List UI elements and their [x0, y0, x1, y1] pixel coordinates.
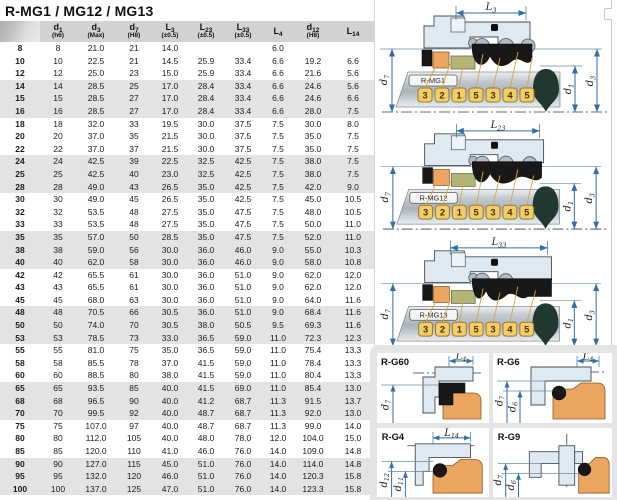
diagram-r-mg1: R-MG1 3 2 1 5 3 4 5 L3 d7 d1 d3: [378, 0, 614, 118]
cell: 62.0: [76, 256, 116, 269]
cell: 69.3: [294, 319, 332, 332]
cell: 14.0: [262, 458, 294, 471]
row-size: 16: [0, 105, 40, 118]
rubber-bellows: [472, 279, 551, 301]
black-ring: [423, 168, 433, 184]
cell: 55.0: [294, 244, 332, 257]
svg-text:2: 2: [440, 324, 445, 335]
row-size: 75: [0, 420, 40, 433]
dim-label-d6: d6: [506, 480, 518, 490]
cell: 39: [116, 155, 152, 168]
table-row: 222237.03721.530.037.57.535.07.5: [0, 143, 374, 156]
svg-text:4: 4: [507, 324, 513, 335]
table-row: 151528.52717.028.433.46.624.66.6: [0, 92, 374, 105]
cell: 45: [116, 193, 152, 206]
cell: 90: [116, 395, 152, 408]
cell: 30.5: [152, 306, 188, 319]
cell: 68.7: [224, 420, 262, 433]
cell: 6.0: [262, 42, 294, 55]
cell: 53: [40, 332, 76, 345]
dim-label-d3: d3: [584, 310, 596, 320]
drive-collar: [451, 253, 465, 267]
cell: 35.0: [188, 181, 224, 194]
cell: 123.3: [294, 483, 332, 496]
cell: 24.6: [294, 92, 332, 105]
row-size: 53: [0, 332, 40, 345]
table-row: 434365.56130.036.051.09.062.012.0: [0, 281, 374, 294]
row-size: 90: [0, 458, 40, 471]
header-row: d1(h6) d3(Max) d7(H8) L3(±0.5) L23(±0.5)…: [0, 21, 374, 42]
cell: 25: [40, 168, 76, 181]
cell: 25.9: [188, 67, 224, 80]
cell: 37.5: [224, 130, 262, 143]
cell: 16: [40, 105, 76, 118]
cell: 21.5: [152, 130, 188, 143]
cell: 90: [40, 458, 76, 471]
cell: 36.0: [188, 269, 224, 282]
cell: 93.5: [76, 382, 116, 395]
cell: 13.7: [332, 395, 374, 408]
cell: 25: [116, 80, 152, 93]
cell: 70: [116, 319, 152, 332]
cell: 37.0: [76, 143, 116, 156]
cell: 47.0: [152, 483, 188, 496]
svg-text:3: 3: [490, 207, 495, 218]
cell: 30.0: [188, 130, 224, 143]
cell: 99.0: [294, 420, 332, 433]
cell: 9.0: [262, 256, 294, 269]
cell: 50.0: [294, 218, 332, 231]
cell: 41.2: [188, 395, 224, 408]
cell: 17.0: [152, 105, 188, 118]
page-title: R-MG1 / MG12 / MG13: [5, 3, 154, 19]
cell: 73: [116, 332, 152, 345]
cell: 38.0: [188, 319, 224, 332]
cell: 48.7: [188, 420, 224, 433]
cell: 7.5: [332, 168, 374, 181]
cell: 65.5: [76, 269, 116, 282]
cell: 17.0: [152, 80, 188, 93]
cell: 41.5: [188, 369, 224, 382]
diagram-label: R-G9: [498, 432, 520, 442]
cell: 50: [116, 231, 152, 244]
cell: 11.0: [262, 382, 294, 395]
cell: 30.0: [188, 118, 224, 131]
cell: 35.0: [294, 130, 332, 143]
row-size: 40: [0, 256, 40, 269]
cell: 51.0: [224, 306, 262, 319]
cell: 42.5: [224, 155, 262, 168]
cell: 7.5: [262, 218, 294, 231]
cell: 22.5: [152, 155, 188, 168]
cell: 78: [116, 357, 152, 370]
cell: 6.6: [262, 55, 294, 68]
cell: 37.5: [224, 143, 262, 156]
cell: 10: [40, 55, 76, 68]
cell: 30.0: [152, 256, 188, 269]
cell: 51.0: [188, 458, 224, 471]
dim-label-l4: L4: [582, 353, 594, 364]
svg-text:4: 4: [507, 207, 513, 218]
cell: 28.5: [76, 92, 116, 105]
diagram-label: R-G60: [381, 357, 409, 368]
table-row: 8585120.011041.046.076.014.0109.014.8: [0, 445, 374, 458]
cell: 7.5: [332, 155, 374, 168]
cell: 30.5: [152, 319, 188, 332]
cell: 28.0: [294, 105, 332, 118]
column-header-l23: L23(±0.5): [188, 21, 224, 42]
cell: 7.5: [262, 193, 294, 206]
cell: 51.0: [224, 281, 262, 294]
column-header-l4: L4: [262, 21, 294, 42]
cell: 30.0: [294, 118, 332, 131]
cell: 48: [116, 206, 152, 219]
cell: 27: [116, 105, 152, 118]
cell: 132.0: [76, 470, 116, 483]
column-header-l3: L3(±0.5): [152, 21, 188, 42]
cell: 32.0: [76, 118, 116, 131]
cell: 109.0: [294, 445, 332, 458]
seat-ring: [433, 52, 449, 68]
cell: 7.5: [262, 118, 294, 131]
dimension-table: d1(h6) d3(Max) d7(H8) L3(±0.5) L23(±0.5)…: [0, 21, 374, 495]
table-row: 9595132.012046.051.076.014.0120.315.8: [0, 470, 374, 483]
cell: 59.0: [224, 344, 262, 357]
cell: 6.6: [262, 105, 294, 118]
o-ring: [433, 463, 447, 477]
cell: 20: [40, 130, 76, 143]
cell: 37.0: [152, 357, 188, 370]
cell: 57.0: [76, 231, 116, 244]
cell: 30.0: [152, 294, 188, 307]
row-size: 70: [0, 407, 40, 420]
dim-label-d7: d7: [381, 399, 393, 410]
table-row: 303049.04526.535.042.57.545.010.5: [0, 193, 374, 206]
cell: 80: [116, 369, 152, 382]
dim-label-d7: d7: [380, 191, 392, 202]
cell: 7.5: [262, 168, 294, 181]
dim-label-d11: d11: [393, 477, 405, 491]
svg-text:3: 3: [422, 91, 427, 102]
table-row: 484870.56630.536.051.09.068.411.6: [0, 306, 374, 319]
cell: 22: [40, 143, 76, 156]
row-size: 100: [0, 483, 40, 496]
cell: 68.7: [224, 395, 262, 408]
row-size: 14: [0, 80, 40, 93]
table-row: 9090127.011545.051.076.014.0114.014.8: [0, 458, 374, 471]
cell: 28.5: [152, 231, 188, 244]
cell: 43: [40, 281, 76, 294]
cell: 30.0: [152, 269, 188, 282]
dim-label-d3: d3: [584, 193, 596, 203]
cell: 75: [116, 344, 152, 357]
dim-label-d1: d1: [563, 84, 576, 95]
cell: 11.0: [262, 369, 294, 382]
cell: 59.0: [224, 332, 262, 345]
cell: 15: [40, 92, 76, 105]
table-row: 121225.02315.025.933.46.621.65.6: [0, 67, 374, 80]
cell: 74.0: [76, 319, 116, 332]
cell: 95: [40, 470, 76, 483]
cell: 115: [116, 458, 152, 471]
cell: 96.5: [76, 395, 116, 408]
cell: 35: [40, 231, 76, 244]
black-ring: [423, 285, 433, 301]
table-row: 454568.06330.036.051.09.064.011.6: [0, 294, 374, 307]
cell: 78.0: [224, 432, 262, 445]
cell: 55: [40, 344, 76, 357]
cell: 48.0: [188, 432, 224, 445]
cell: 88.5: [76, 369, 116, 382]
cell: 36.5: [188, 344, 224, 357]
cell: 23: [116, 67, 152, 80]
cell: 26.5: [152, 193, 188, 206]
row-size: 30: [0, 193, 40, 206]
table-row: 555581.07535.036.559.011.075.413.3: [0, 344, 374, 357]
row-size: 28: [0, 181, 40, 194]
cell: 120.3: [294, 470, 332, 483]
cell: 76.0: [224, 445, 262, 458]
cell: 10.3: [332, 244, 374, 257]
cell: 33.0: [152, 332, 188, 345]
diagram-r-mg12: R-MG12 3 2 1 5 3 4 5 L23 d7 d1 d3: [378, 118, 614, 235]
cell: 53.5: [76, 218, 116, 231]
cell: 120: [116, 470, 152, 483]
cell: 69.0: [224, 382, 262, 395]
cell: 68: [40, 395, 76, 408]
cell: 40.0: [152, 432, 188, 445]
cell: 11.0: [262, 332, 294, 345]
cell: 36.0: [188, 244, 224, 257]
cell: 13.3: [332, 344, 374, 357]
cell: 72.3: [294, 332, 332, 345]
cell: 13.3: [332, 357, 374, 370]
cell: 7.5: [332, 143, 374, 156]
cell: 32: [40, 206, 76, 219]
cell: 104.0: [294, 432, 332, 445]
cell: 51.0: [224, 294, 262, 307]
cell: 76.0: [224, 470, 262, 483]
diagram-r-g9: d7 d6 R-G9: [493, 428, 612, 497]
row-size: 85: [0, 445, 40, 458]
cell: 45.0: [294, 193, 332, 206]
cell: 30.0: [152, 244, 188, 257]
cell: 11.6: [332, 294, 374, 307]
column-header-d3: d3(Max): [76, 21, 116, 42]
cell: 36.0: [188, 294, 224, 307]
row-size: 10: [0, 55, 40, 68]
cell: 45: [40, 294, 76, 307]
cell: 37.5: [224, 118, 262, 131]
cell: 61: [116, 269, 152, 282]
cell: 51.0: [224, 269, 262, 282]
cell: 40: [116, 168, 152, 181]
cell: 56: [116, 244, 152, 257]
cell: 10.5: [332, 206, 374, 219]
svg-text:1: 1: [456, 91, 462, 102]
cell: 42: [40, 269, 76, 282]
cell: 14: [40, 80, 76, 93]
cell: 32.5: [188, 155, 224, 168]
cell: 18: [40, 118, 76, 131]
cell: 9.0: [262, 306, 294, 319]
dim-label-d7: d7: [493, 474, 505, 485]
cell: 11.0: [332, 218, 374, 231]
svg-text:5: 5: [524, 91, 530, 102]
cell: 58: [116, 256, 152, 269]
cell: 76.0: [224, 458, 262, 471]
table-row: 323253.54827.535.047.57.548.010.5: [0, 206, 374, 219]
cell: 63: [116, 294, 152, 307]
drive-collar: [451, 136, 465, 150]
cell: 78.4: [294, 357, 332, 370]
cell: 40: [40, 256, 76, 269]
cell: 17.0: [152, 92, 188, 105]
cell: 28.4: [188, 80, 224, 93]
table-row: 8821.02114.06.0: [0, 42, 374, 55]
cell: 65: [40, 382, 76, 395]
cell: 15.0: [152, 67, 188, 80]
cell: 36.0: [188, 306, 224, 319]
cell: 40.0: [152, 407, 188, 420]
table-row: 656593.58540.041.569.011.085.413.0: [0, 382, 374, 395]
cell: 50: [40, 319, 76, 332]
row-size: 55: [0, 344, 40, 357]
row-size: 68: [0, 395, 40, 408]
cell: 120.0: [76, 445, 116, 458]
column-header-l14: L14: [332, 21, 374, 42]
cell: 99.5: [76, 407, 116, 420]
sleeve: [559, 446, 575, 485]
cell: 66: [116, 306, 152, 319]
cell: 15.8: [332, 483, 374, 496]
cell: 91.5: [294, 395, 332, 408]
cell: 62.0: [294, 281, 332, 294]
diagram-label: R-G4: [382, 432, 405, 442]
row-size: 95: [0, 470, 40, 483]
cell: 24.6: [294, 80, 332, 93]
cell: 33.4: [224, 80, 262, 93]
cell: 21.0: [76, 42, 116, 55]
cell: 23.0: [152, 168, 188, 181]
cell: 7.5: [262, 181, 294, 194]
table-row: 424265.56130.036.051.09.062.012.0: [0, 269, 374, 282]
cell: 12.3: [332, 332, 374, 345]
cell: 48.0: [294, 206, 332, 219]
cell: 35.0: [188, 231, 224, 244]
set-screw: [491, 24, 498, 31]
table-row: 161628.52717.028.433.46.628.07.5: [0, 105, 374, 118]
cell: 12.0: [332, 281, 374, 294]
table-row: 505074.07030.538.050.59.569.311.6: [0, 319, 374, 332]
cell: 13.0: [332, 407, 374, 420]
row-size: 80: [0, 432, 40, 445]
cell: 33.4: [224, 55, 262, 68]
cell: 30: [40, 193, 76, 206]
table-row: 404062.05830.036.046.09.058.010.8: [0, 256, 374, 269]
cell: 59.0: [224, 369, 262, 382]
cell: 30.0: [152, 281, 188, 294]
svg-text:1: 1: [457, 207, 462, 218]
cell: 81.0: [76, 344, 116, 357]
svg-text:3: 3: [490, 324, 495, 335]
cell: 51.0: [188, 483, 224, 496]
cell: 76.0: [224, 483, 262, 496]
cell: 5.6: [332, 80, 374, 93]
cell: 11.3: [262, 420, 294, 433]
column-header-l33: L33(±0.5): [224, 21, 262, 42]
cell: 6.6: [262, 67, 294, 80]
svg-text:5: 5: [473, 91, 479, 102]
cell: 11.0: [262, 357, 294, 370]
row-size: 32: [0, 206, 40, 219]
cell: 100: [40, 483, 76, 496]
cell: 92.0: [294, 407, 332, 420]
cell: 60: [40, 369, 76, 382]
cell: 40.0: [152, 382, 188, 395]
cell: 41.0: [152, 445, 188, 458]
row-size: 20: [0, 130, 40, 143]
cell: 33: [116, 118, 152, 131]
table-row: 242442.53922.532.542.57.538.07.5: [0, 155, 374, 168]
cell: 11.3: [262, 407, 294, 420]
cell: 62.0: [294, 269, 332, 282]
cell: 42.5: [224, 181, 262, 194]
cell: 43: [116, 181, 152, 194]
cell: 13.0: [332, 382, 374, 395]
cell: 37.0: [76, 130, 116, 143]
table-row: 353557.05028.535.047.57.552.011.0: [0, 231, 374, 244]
table-row: 535378.57333.036.559.011.072.312.3: [0, 332, 374, 345]
table-row: 141428.52517.028.433.46.624.65.6: [0, 80, 374, 93]
seat-ring: [434, 170, 450, 186]
cell: 70: [40, 407, 76, 420]
seat-diagrams-panel: L4 d7 R-G60 L4 d7 d6 R-G6 L14 d1: [370, 345, 617, 500]
cell: 65.5: [76, 281, 116, 294]
cell: 59.0: [76, 244, 116, 257]
svg-text:4: 4: [507, 91, 513, 102]
cell: [188, 42, 224, 55]
row-size: 48: [0, 306, 40, 319]
column-header-d1: d1(h6): [40, 21, 76, 42]
cell: 36.5: [188, 332, 224, 345]
diagram-label: R-MG13: [420, 310, 448, 319]
cell: 6.6: [332, 55, 374, 68]
cell: 105: [116, 432, 152, 445]
svg-text:3: 3: [423, 324, 428, 335]
cell: 27.5: [152, 218, 188, 231]
cell: 42.5: [76, 168, 116, 181]
dim-label-l4: L4: [455, 353, 467, 364]
table-body: 8821.02114.06.0101022.52114.525.933.46.6…: [0, 42, 374, 495]
cell: 12.0: [262, 432, 294, 445]
svg-text:2: 2: [439, 91, 444, 102]
cell: 14.0: [332, 420, 374, 433]
cell: 9.0: [262, 281, 294, 294]
cell: 45.0: [152, 458, 188, 471]
cell: 24: [40, 155, 76, 168]
cell: 15.0: [332, 432, 374, 445]
dim-label-l23: L23: [490, 120, 506, 132]
table-row: 707099.59240.048.768.711.392.013.0: [0, 407, 374, 420]
seat-housing-stub: [575, 452, 583, 464]
cell: 48: [40, 306, 76, 319]
cell: 27.5: [152, 206, 188, 219]
o-ring: [552, 386, 566, 400]
cell: 125: [116, 483, 152, 496]
cell: 9.0: [332, 181, 374, 194]
column-header-d12: d12(H8): [294, 21, 332, 42]
